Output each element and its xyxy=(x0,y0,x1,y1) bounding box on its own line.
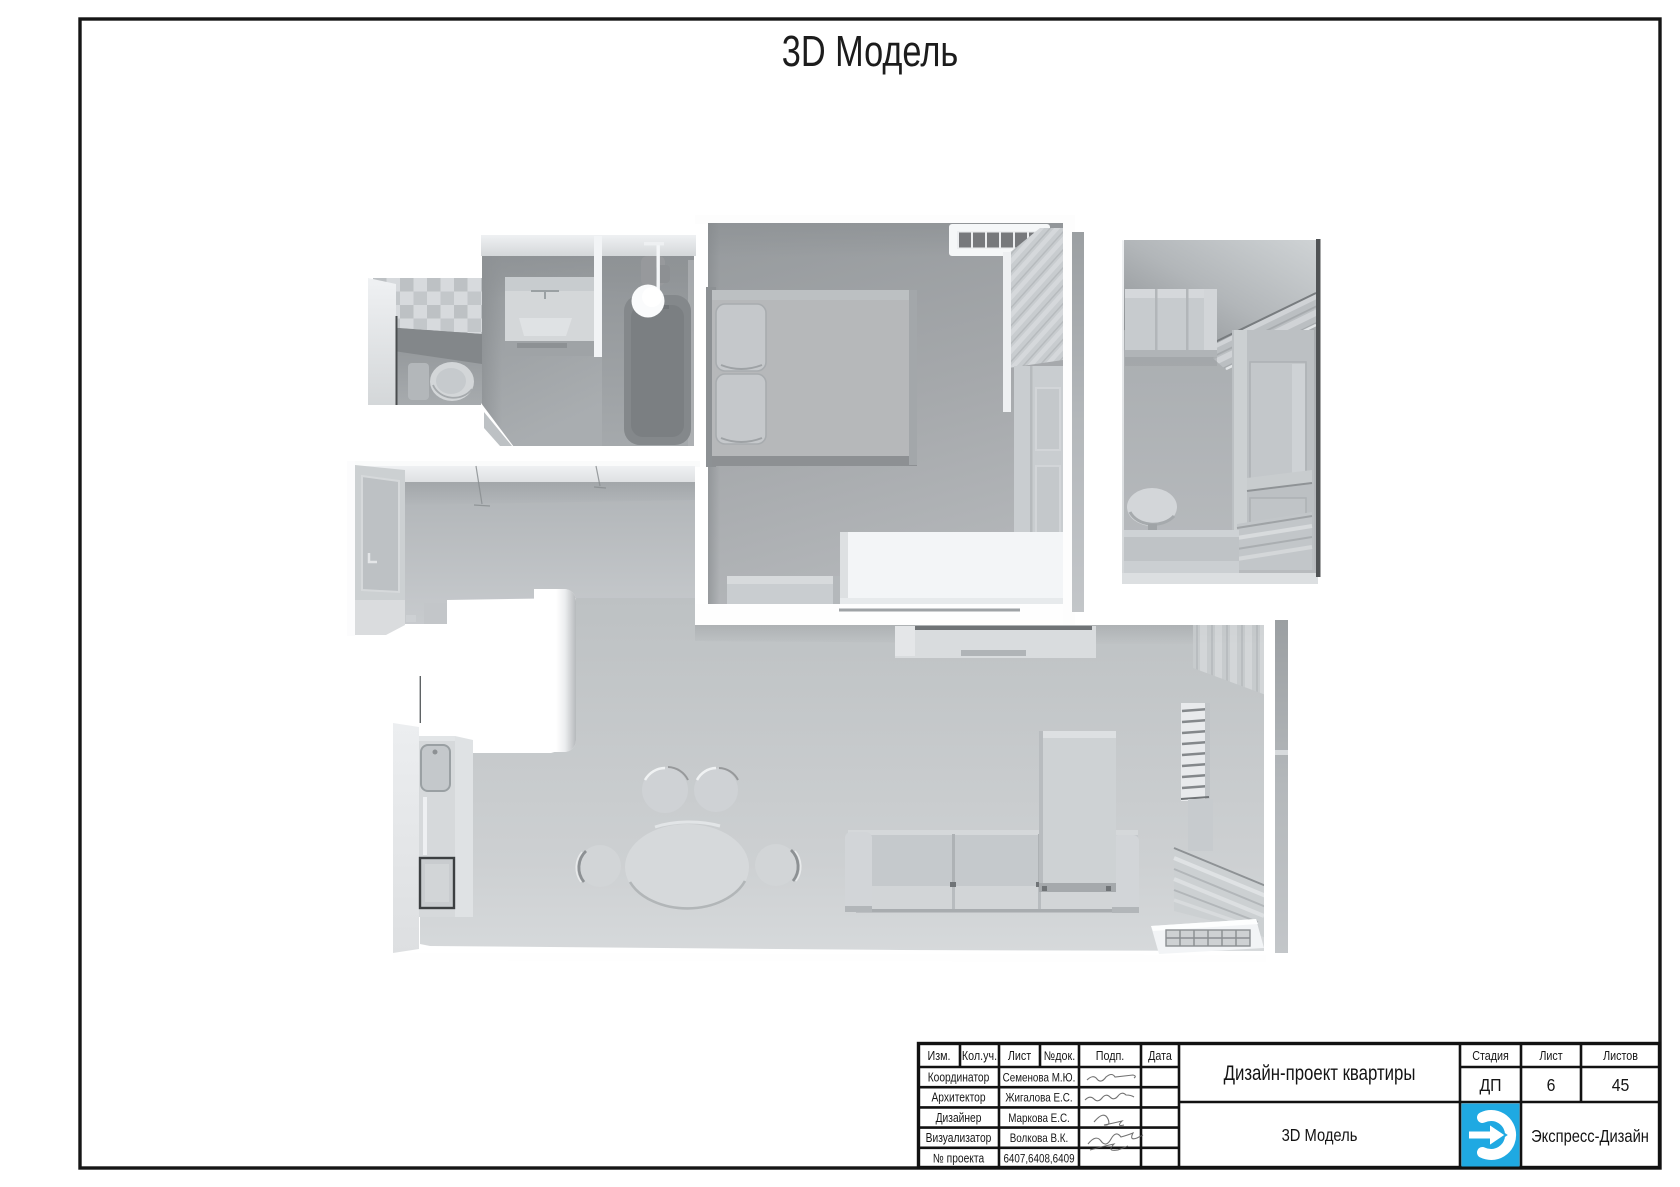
svg-text:ДП: ДП xyxy=(1479,1075,1501,1095)
svg-text:№док.: №док. xyxy=(1044,1049,1075,1063)
svg-text:3D Модель: 3D Модель xyxy=(782,27,959,76)
svg-text:Визуализатор: Визуализатор xyxy=(926,1132,992,1145)
svg-text:Дизайн-проект квартиры: Дизайн-проект квартиры xyxy=(1224,1062,1416,1085)
svg-text:Жигалова Е.С.: Жигалова Е.С. xyxy=(1005,1092,1072,1105)
svg-text:Стадия: Стадия xyxy=(1472,1049,1509,1063)
svg-text:Подп.: Подп. xyxy=(1096,1049,1125,1063)
svg-text:Листов: Листов xyxy=(1603,1049,1638,1063)
svg-text:Изм.: Изм. xyxy=(927,1049,950,1063)
svg-text:Дата: Дата xyxy=(1148,1049,1172,1063)
svg-text:Волкова В.К.: Волкова В.К. xyxy=(1010,1132,1069,1145)
svg-text:Семенова М.Ю.: Семенова М.Ю. xyxy=(1003,1072,1076,1085)
svg-text:№ проекта: № проекта xyxy=(933,1152,985,1165)
svg-text:Маркова Е.С.: Маркова Е.С. xyxy=(1008,1112,1070,1125)
svg-text:Лист: Лист xyxy=(1539,1049,1563,1063)
svg-text:Кол.уч.: Кол.уч. xyxy=(962,1049,997,1063)
svg-text:45: 45 xyxy=(1612,1075,1630,1095)
svg-text:Экспресс-Дизайн: Экспресс-Дизайн xyxy=(1531,1127,1649,1146)
svg-text:Координатор: Координатор xyxy=(928,1072,990,1085)
svg-text:Дизайнер: Дизайнер xyxy=(936,1112,982,1125)
svg-text:6: 6 xyxy=(1547,1075,1556,1095)
svg-text:Лист: Лист xyxy=(1008,1049,1032,1063)
svg-text:3D Модель: 3D Модель xyxy=(1282,1126,1358,1146)
svg-text:6407,6408,6409: 6407,6408,6409 xyxy=(1003,1152,1074,1165)
svg-text:Архитектор: Архитектор xyxy=(931,1092,985,1105)
